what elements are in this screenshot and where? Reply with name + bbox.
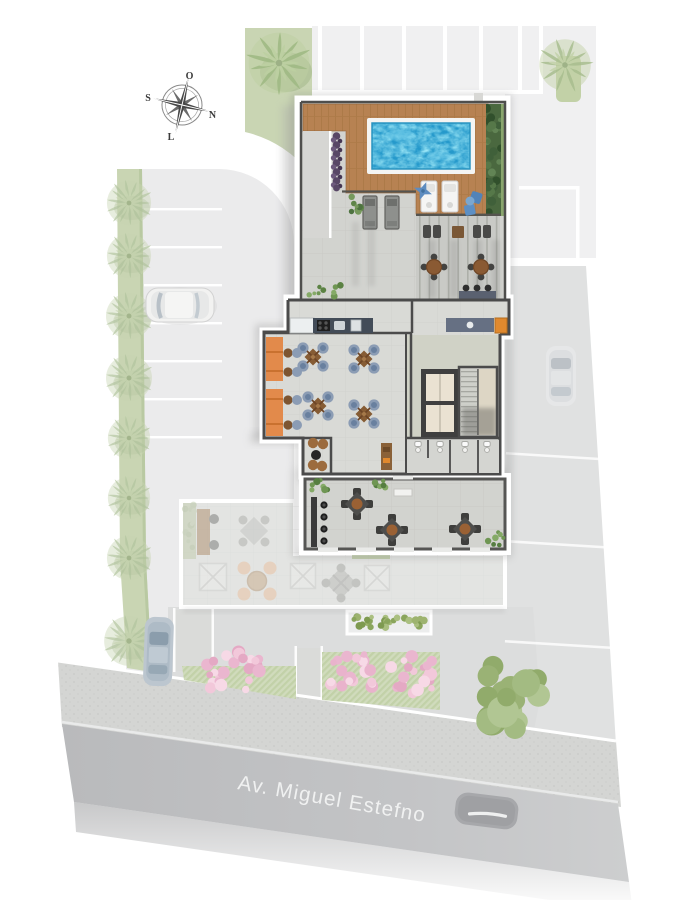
svg-text:N: N	[209, 110, 217, 121]
svg-text:S: S	[145, 93, 151, 104]
svg-text:L: L	[168, 132, 175, 143]
svg-text:O: O	[186, 71, 194, 82]
